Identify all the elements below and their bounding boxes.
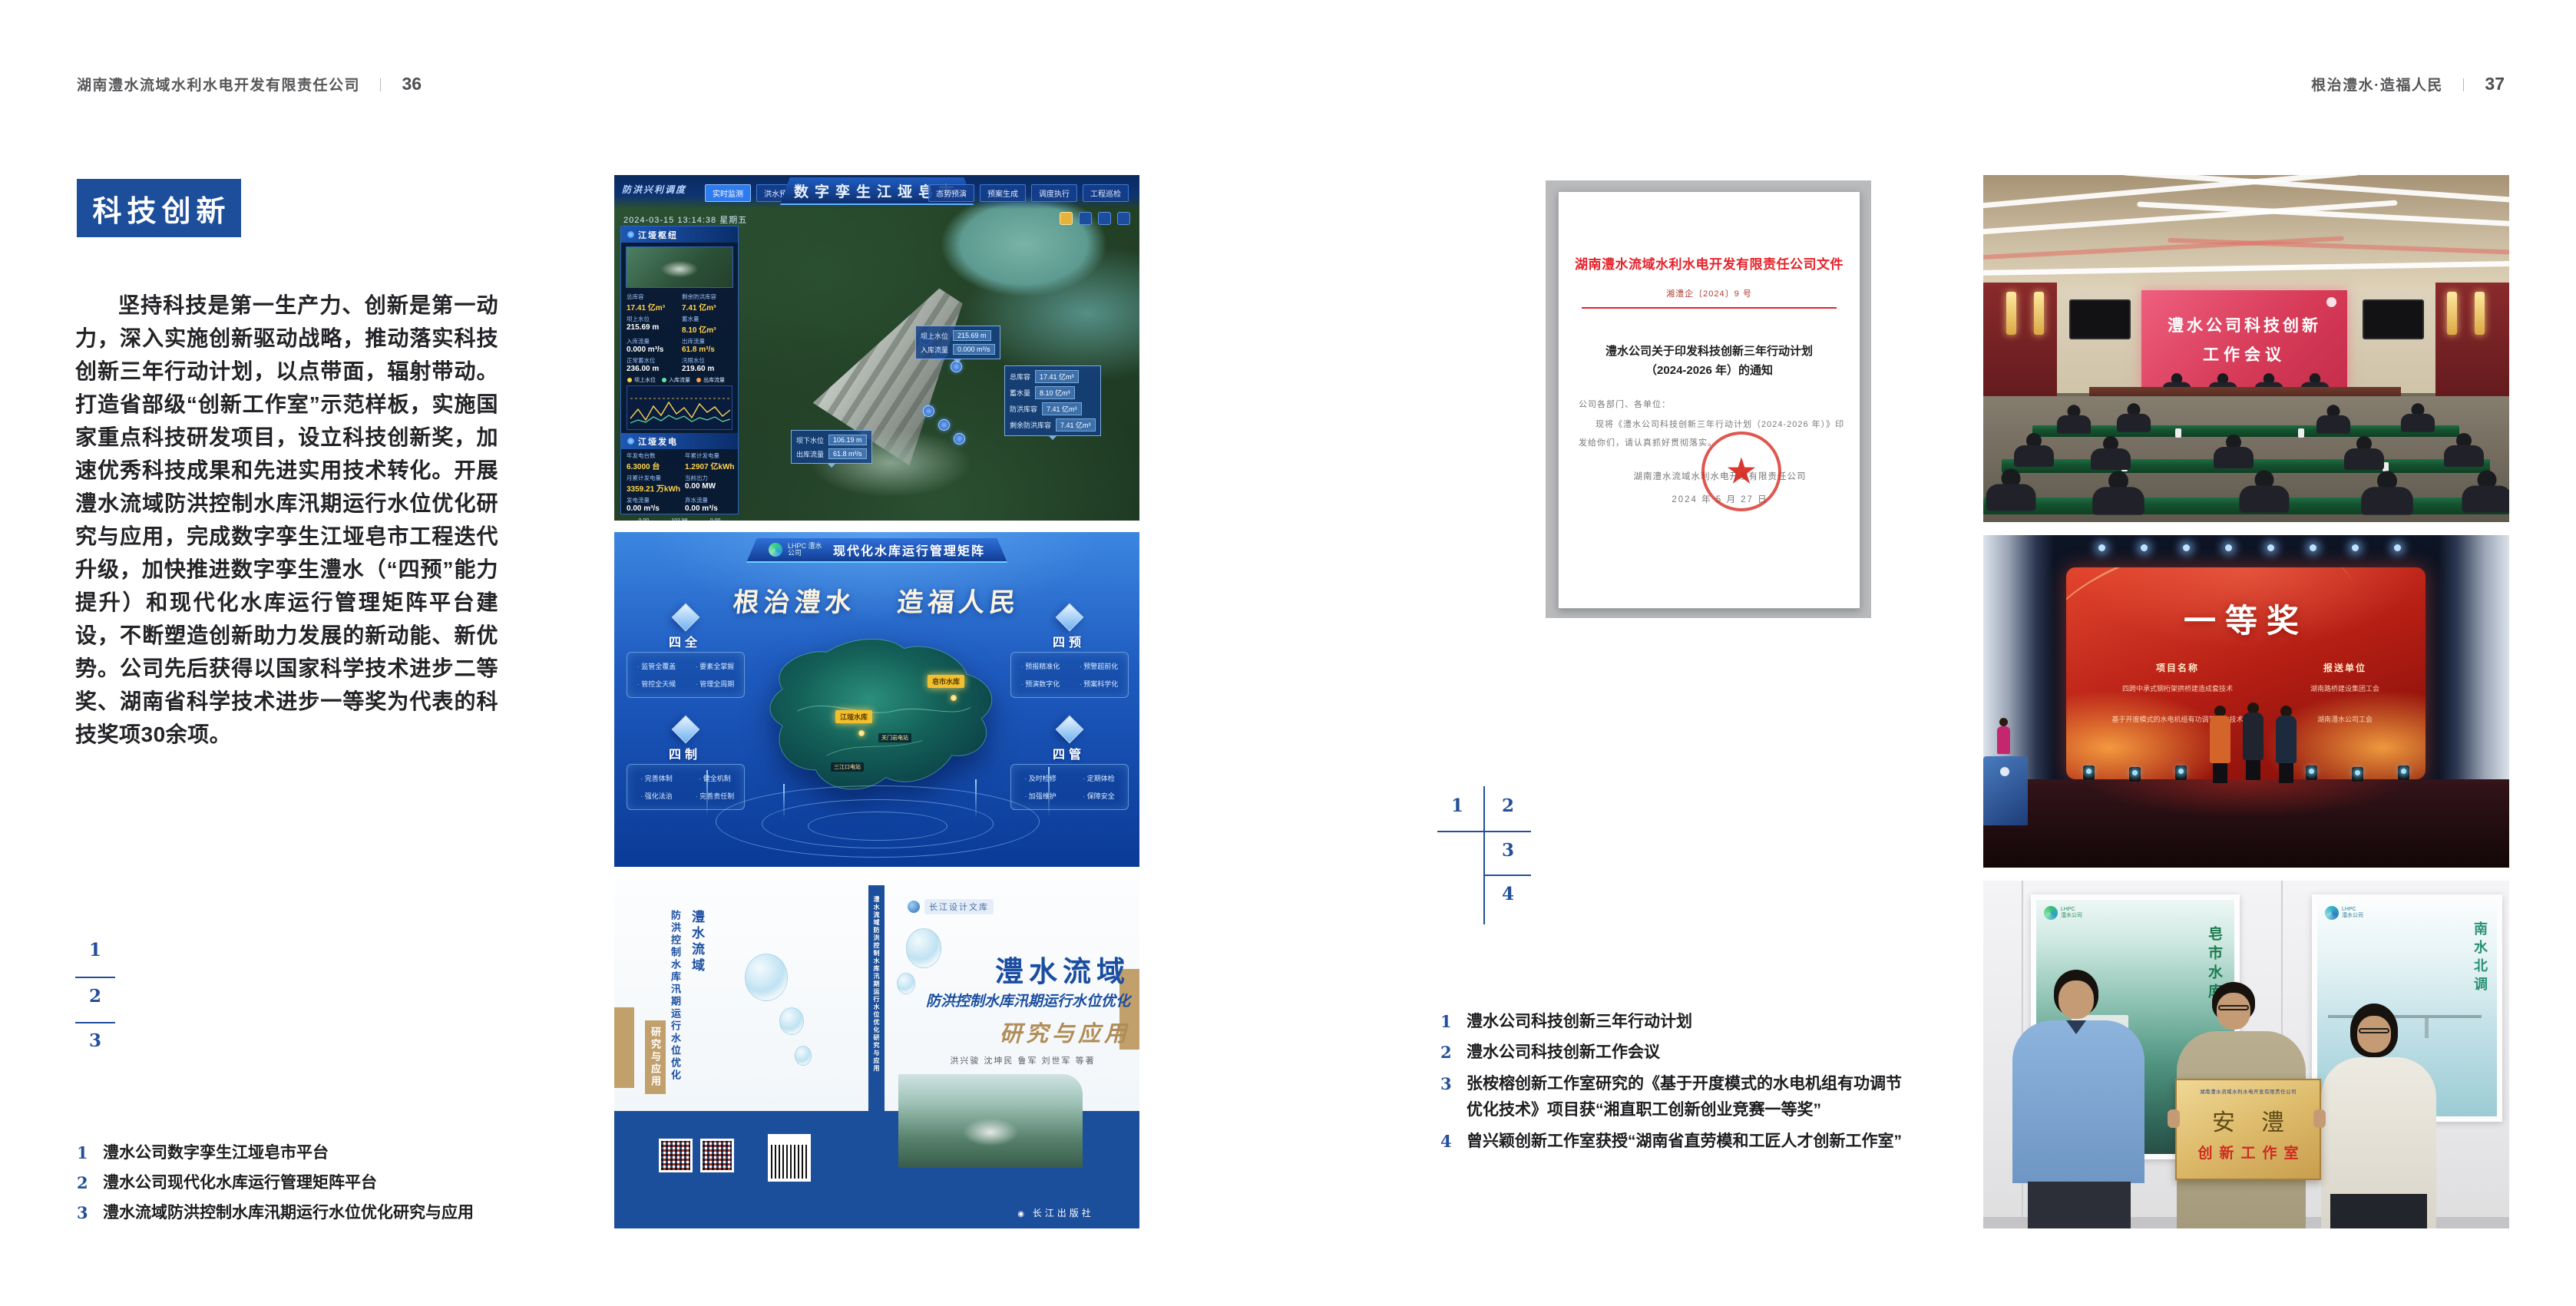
- map-pin-jiangya: 江垭水库: [835, 710, 872, 723]
- face: [2357, 1016, 2391, 1053]
- group-item: 预报精准化: [1021, 661, 1060, 671]
- hydro-plant-photo: [983, 1119, 1133, 1200]
- stat: 剩余防洪库容7.41 亿m³: [682, 293, 732, 312]
- document-paper: 湖南澧水流域水利水电开发有限责任公司文件 湘澧企〔2024〕9 号 澧水公司关于…: [1558, 191, 1860, 609]
- slogan-part: 造福人民: [895, 587, 1021, 618]
- light-pillar: [783, 784, 785, 819]
- figure-digital-twin-dashboard: 防洪兴利调度 实时监测 洪水预报 防洪预警 数字孪生江垭皂市 态势预演 预案生成…: [614, 175, 1139, 521]
- panel-power-title: 江垭发电: [638, 435, 678, 448]
- brand-label: LHPC 澧水公司: [788, 543, 828, 557]
- left-page-header: 湖南澧水流域水利水电开发有限责任公司 ｜ 36: [77, 74, 422, 94]
- tooltip-row: 入库流量0.000 m³/s: [921, 344, 995, 355]
- host-podium: [1983, 756, 2028, 825]
- bridge-in-poster: [2328, 1015, 2482, 1018]
- stat: 出库流量61.8 m³/s: [682, 337, 732, 354]
- group-item: 健全机制: [699, 773, 731, 783]
- light-pillar: [1048, 767, 1050, 818]
- moving-light: [2175, 765, 2187, 780]
- legend-item: 入库流量: [662, 376, 690, 384]
- stat: 发电流量0.00 m³/s: [627, 496, 680, 513]
- lhpc-logo-icon: [2325, 906, 2339, 920]
- barcode-stripes: [771, 1145, 808, 1179]
- chart-legend: 坝上水位 入库流量 出库流量: [621, 375, 738, 384]
- face: [2058, 980, 2094, 1019]
- bridge-pier: [2425, 1018, 2429, 1038]
- group-item: 监管全覆盖: [637, 661, 676, 671]
- index-grid-vline: [1483, 786, 1485, 924]
- group-item: 加强维护: [1024, 791, 1057, 801]
- tab-project-inspect: 工程巡检: [1083, 184, 1129, 202]
- stage-light: [2267, 544, 2274, 551]
- stat: 年发电台数6.3000 台: [627, 451, 680, 471]
- company-name: 湖南澧水流域水利水电开发有限责任公司: [77, 74, 360, 94]
- settings-icon: [1117, 212, 1130, 225]
- library-logo-row: 长江设计文库: [908, 899, 994, 914]
- figure-index-4: 4: [1491, 884, 1525, 904]
- tooltip-upstream: 坝上水位215.69 m 入库流量0.000 m³/s: [915, 326, 1000, 359]
- photo-award-ceremony: 一等奖 项目名称 报送单位 四跨中承式钢桁架拱桥建造成套技术 湖南路桥建设集团工…: [1983, 535, 2509, 868]
- ripple-ellipse: [808, 812, 947, 841]
- back-title-tail: 研究与应用: [645, 1020, 666, 1094]
- award-unit-2: 湖南澧水公司工会: [2287, 715, 2402, 725]
- back-title-sub: 防洪控制水库汛期运行水位优化: [668, 910, 683, 1094]
- ceiling-red-strip: [1983, 236, 2344, 260]
- header-divider: ｜: [2457, 74, 2472, 94]
- group-item: 管理全周期: [696, 679, 735, 689]
- panel-logo-icon: [627, 438, 634, 445]
- front-title-tail: 研究与应用: [961, 1016, 1130, 1048]
- gate-marker: [954, 433, 965, 445]
- figure-index-1: 1: [75, 940, 115, 960]
- caption-number: 4: [1440, 1129, 1456, 1155]
- panel-logo-icon: [627, 231, 634, 238]
- group-panel-siyu: 预报精准化 预警超前化 预演数字化 预案科学化: [1010, 652, 1129, 698]
- lhpc-logo-icon: [769, 543, 782, 557]
- photo-official-document: 湖南澧水流域水利水电开发有限责任公司文件 湘澧企〔2024〕9 号 澧水公司关于…: [1546, 180, 1871, 618]
- screen-title-line1: 澧水公司科技创新: [2141, 313, 2347, 336]
- group-panel-siguan: 及时检修 定期体检 加强维护 保障安全: [1010, 764, 1129, 810]
- pin-dot: [858, 730, 865, 736]
- stage-light: [2183, 544, 2190, 551]
- wall-lamp: [2447, 292, 2457, 335]
- hub-stats-grid: 总库容17.41 亿m³ 剩余防洪库容7.41 亿m³ 坝上水位215.69 m…: [621, 290, 738, 375]
- gauge: 102.98: [670, 518, 689, 521]
- light-pillar: [975, 779, 977, 819]
- presenter-suit: [2243, 703, 2264, 780]
- page-number-right: 37: [2485, 74, 2505, 94]
- matrix-title: 现代化水库运行管理矩阵: [833, 541, 985, 559]
- document-title-line1: 澧水公司关于印发科技创新三年行动计划: [1559, 342, 1860, 359]
- group-name: 四制: [627, 744, 742, 762]
- caption-number: 1: [77, 1140, 92, 1166]
- caption-number: 2: [1440, 1040, 1456, 1066]
- header-divider: ｜: [374, 74, 389, 94]
- moving-light: [2129, 767, 2141, 782]
- moving-light: [2352, 767, 2363, 782]
- water-droplet: [795, 1046, 812, 1066]
- caption-row: 4 曾兴颖创新工作室获授“湖南省直劳模和工匠人才创新工作室”: [1440, 1129, 1902, 1155]
- qr-code: [700, 1139, 734, 1172]
- group-item: 完善责任制: [696, 791, 735, 801]
- user-icon: [1060, 212, 1073, 225]
- water-droplet: [779, 1007, 804, 1035]
- panel-header-hub: 江垭枢纽: [621, 226, 738, 243]
- caption-row: 3 张桉榕创新工作室研究的《基于开度模式的水电机组有功调节优化技术》项目获“湘直…: [1440, 1071, 1913, 1123]
- figure-index-2: 2: [1491, 795, 1525, 816]
- document-red-header: 湖南澧水流域水利水电开发有限责任公司文件: [1559, 253, 1860, 273]
- spine-title: 澧水流域防洪控制水库汛期运行水位优化研究与应用: [872, 896, 881, 1073]
- caption-text: 张桉榕创新工作室研究的《基于开度模式的水电机组有功调节优化技术》项目获“湘直职工…: [1467, 1071, 1913, 1123]
- stat: 正常蓄水位236.00 m: [627, 356, 677, 373]
- caption-text: 曾兴颖创新工作室获授“湖南省直劳模和工匠人才创新工作室”: [1467, 1129, 1902, 1155]
- column-header-unit: 报送单位: [2287, 661, 2402, 674]
- lhpc-logo: LHPC澧水公司: [2044, 906, 2082, 920]
- award-project-1: 四跨中承式钢桁架拱桥建造成套技术: [2082, 684, 2273, 694]
- screen-logo-icon: [2326, 297, 2336, 307]
- wall-lamp: [2006, 292, 2016, 335]
- document-title-line2: （2024-2026 年）的通知: [1559, 362, 1860, 378]
- figure-reservoir-matrix: LHPC 澧水公司 现代化水库运行管理矩阵 根治澧水 造福人民 皂市水库 江垭水…: [614, 532, 1139, 867]
- audience-member: [2444, 433, 2484, 467]
- group-item: 强化法治: [640, 791, 673, 801]
- caption-text: 澧水流域防洪控制水库汛期运行水位优化研究与应用: [103, 1200, 474, 1226]
- group-item: 及时检修: [1024, 773, 1057, 783]
- caption-row: 2 澧水公司科技创新工作会议: [1440, 1040, 1660, 1066]
- index-divider: [75, 977, 115, 978]
- lhpc-logo: LHPC澧水公司: [2325, 906, 2363, 920]
- lhpc-logo-icon: [2044, 906, 2058, 920]
- audience-member: [2091, 436, 2131, 470]
- group-item: 管控全天候: [637, 679, 676, 689]
- tooltip-capacity: 总库容17.41 亿m³ 蓄水量8.10 亿m³ 防洪库容7.41 亿m³ 剩余…: [1004, 365, 1101, 436]
- seal-star-icon: ★: [1727, 455, 1756, 488]
- award-title: 一等奖: [2066, 595, 2426, 642]
- lhpc-logo-text: LHPC澧水公司: [2061, 907, 2082, 918]
- water-droplet: [906, 928, 941, 968]
- watershed-map: [737, 623, 1020, 807]
- caption-text: 澧水公司科技创新工作会议: [1467, 1040, 1660, 1066]
- panel-hub-title: 江垭枢纽: [638, 229, 678, 241]
- tooltip-row: 坝上水位215.69 m: [921, 330, 995, 341]
- stat: 坝上水位215.69 m: [627, 315, 677, 335]
- pin-dot: [951, 695, 957, 701]
- moving-light: [2083, 765, 2095, 780]
- water-droplet: [745, 954, 788, 1001]
- matrix-title-banner: LHPC 澧水公司 现代化水库运行管理矩阵: [746, 538, 1007, 563]
- poster-calligraphy: 南水北调: [2469, 921, 2489, 995]
- book-spine: 澧水流域防洪控制水库汛期运行水位优化研究与应用: [868, 885, 885, 1224]
- group-item: 完善体制: [640, 773, 673, 783]
- stage-light: [2352, 544, 2359, 551]
- lhpc-logo-text: LHPC澧水公司: [2342, 907, 2363, 918]
- wall-lamp: [2034, 292, 2044, 335]
- panel-header-power: 江垭发电: [621, 433, 738, 449]
- authors-line: 洪兴骏 沈坤民 鲁军 刘世军 等著: [915, 1054, 1130, 1066]
- stage-light: [2394, 544, 2401, 551]
- caption-row: 1 澧水公司科技创新三年行动计划: [1440, 1009, 1692, 1035]
- map-pin-sanjiangkou: 三江口电站: [831, 762, 864, 772]
- dashboard-left-panel: 江垭枢纽 总库容17.41 亿m³ 剩余防洪库容7.41 亿m³ 坝上水位215…: [620, 226, 739, 514]
- group-panel-siquan: 监管全覆盖 要素全掌握 管控全天候 管理全周期: [627, 652, 745, 698]
- group-item: 要素全掌握: [696, 661, 735, 671]
- innovation-studio-plaque: 湖南澧水流域水利水电开发有限责任公司 安澧 创新工作室: [2175, 1079, 2321, 1180]
- screen-title-line2: 工作会议: [2141, 342, 2347, 365]
- group-icon-sizhi: [672, 716, 700, 744]
- legend-item: 出库流量: [696, 376, 725, 384]
- glasses-icon: [2218, 1005, 2249, 1010]
- locate-icon: [1098, 212, 1111, 225]
- back-title-region: 澧水流域: [687, 910, 706, 1094]
- caption-text: 澧水公司数字孪生江垭皂市平台: [103, 1140, 329, 1166]
- section-title-badge: 科技创新: [77, 179, 241, 237]
- audience-member: [1986, 469, 2036, 511]
- awardee-navy: [2276, 706, 2297, 783]
- wall-tv: [2069, 299, 2131, 339]
- group-name: 四预: [1011, 632, 1126, 650]
- hand: [2313, 1109, 2326, 1128]
- group-item: 保障安全: [1083, 791, 1115, 801]
- water-level-chart: [627, 385, 732, 430]
- document-body-line2: 发给你们，请认真抓好贯彻落实。: [1579, 436, 1717, 448]
- index-divider: [75, 1022, 115, 1023]
- tooltip-row: 出库流量61.8 m³/s: [796, 448, 867, 459]
- figure-index-1: 1: [1440, 795, 1474, 816]
- caption-row: 2 澧水公司现代化水库运行管理矩阵平台: [77, 1170, 377, 1196]
- front-title-region: 澧水流域: [940, 948, 1130, 990]
- plaque-subtitle: 创新工作室: [2177, 1142, 2320, 1162]
- figure-index-2: 2: [75, 986, 115, 1007]
- caption-text: 澧水公司现代化水库运行管理矩阵平台: [103, 1170, 377, 1196]
- caption-number: 2: [77, 1170, 92, 1196]
- dashboard-right-tabs: 态势预演 预案生成 调度执行 工程巡检: [928, 184, 1129, 202]
- tan-accent-block: [614, 1007, 634, 1088]
- audience-member: [2014, 433, 2054, 467]
- face: [2217, 993, 2250, 1030]
- plaque-company-line: 湖南澧水流域水利水电开发有限责任公司: [2177, 1087, 2320, 1095]
- stage-light: [2310, 544, 2316, 551]
- caption-number: 3: [1440, 1071, 1456, 1097]
- tab-plan-generate: 预案生成: [980, 184, 1026, 202]
- page-number-left: 36: [402, 74, 422, 94]
- moving-light: [2398, 765, 2409, 780]
- audience-member: [2401, 403, 2435, 431]
- document-red-rule: [1582, 307, 1837, 309]
- slogan-part: 根治澧水: [732, 587, 858, 618]
- tab-situation-preview: 态势预演: [928, 184, 974, 202]
- group-item: 预警超前化: [1080, 661, 1119, 671]
- figure-book-cover: 澧水流域 防洪控制水库汛期运行水位优化 研究与应用 澧水流域防洪控制水库汛期运行…: [614, 881, 1139, 1228]
- column-header-project: 项目名称: [2105, 661, 2250, 674]
- tooltip-row: 剩余防洪库容7.41 亿m³: [1010, 418, 1096, 431]
- skirt: [2330, 1194, 2427, 1228]
- body-paragraph: 坚持科技是第一生产力、创新是第一动力，深入实施创新驱动战略，推动落实科技创新三年…: [75, 289, 498, 751]
- group-name: 四管: [1011, 744, 1126, 762]
- stage-light: [2098, 544, 2105, 551]
- audience-member: [2057, 405, 2091, 433]
- group-item: 预演数字化: [1021, 679, 1060, 689]
- stat: 入库流量0.000 m³/s: [627, 337, 677, 354]
- host-figure: [1997, 718, 2010, 754]
- light-pillar: [706, 770, 708, 816]
- caption-row: 1 澧水公司数字孪生江垭皂市平台: [77, 1140, 329, 1166]
- plaque-main-title: 安澧: [2177, 1103, 2320, 1137]
- group-item: 预案科学化: [1080, 679, 1119, 689]
- caption-number: 3: [77, 1200, 92, 1226]
- index-grid-hline: [1483, 875, 1531, 876]
- audience-member: [2240, 471, 2290, 513]
- tooltip-row: 蓄水量8.10 亿m³: [1010, 386, 1096, 399]
- caption-text: 澧水公司科技创新三年行动计划: [1467, 1009, 1692, 1035]
- audience-member: [2462, 471, 2510, 513]
- map-pin-zaoshi: 皂市水库: [928, 675, 964, 688]
- caption-row: 3 澧水流域防洪控制水库汛期运行水位优化研究与应用: [77, 1200, 474, 1226]
- hand: [2168, 1109, 2180, 1128]
- stat: 蓄水量8.10 亿m³: [682, 315, 732, 335]
- stat: 汛限水位219.60 m: [682, 356, 732, 373]
- library-label: 长江设计文库: [924, 899, 994, 914]
- hub-photo-thumbnail: [626, 246, 733, 288]
- stage-light: [2225, 544, 2232, 551]
- ceiling-light: [1983, 261, 2509, 276]
- index-grid-hline: [1437, 831, 1531, 832]
- wall-lamp: [2475, 292, 2485, 335]
- generator-gauges: 0.00 102.98 0.00: [621, 515, 738, 521]
- audience-member: [2361, 471, 2413, 514]
- moving-light: [2306, 765, 2317, 780]
- tab-dispatch-execute: 调度执行: [1031, 184, 1077, 202]
- document-salutation: 公司各部门、各单位：: [1579, 398, 1671, 410]
- caption-number: 1: [1440, 1009, 1456, 1035]
- stage-light: [2141, 544, 2148, 551]
- group-icon-siguan: [1056, 716, 1084, 744]
- tooltip-row: 防洪库容7.41 亿m³: [1010, 402, 1096, 415]
- group-panel-sizhi: 完善体制 健全机制 强化法治 完善责任制: [627, 764, 745, 810]
- stat: 总库容17.41 亿m³: [627, 293, 677, 312]
- gate-marker: [923, 405, 934, 417]
- photo-studio-plaque: LHPC澧水公司 皂市水库 LHPC澧水公司 南水北调 湖南澧水流域水利水电开发…: [1983, 881, 2509, 1228]
- changjiang-design-logo-icon: [908, 901, 920, 913]
- qr-code: [659, 1139, 693, 1172]
- audience-member: [2117, 403, 2151, 431]
- dashboard-corner-label: 防洪兴利调度: [622, 183, 686, 196]
- dashboard-datetime: 2024-03-15 13:14:38 星期五: [623, 213, 747, 226]
- group-item: 定期体检: [1083, 773, 1115, 783]
- group-name: 四全: [627, 632, 742, 650]
- right-page-header: 根治澧水·造福人民 ｜ 37: [2311, 74, 2505, 94]
- tooltip-row: 坝下水位106.19 m: [796, 435, 867, 445]
- stat: 月累计发电量3359.21 万kWh: [627, 474, 680, 494]
- publisher-label: 长江出版社: [975, 1206, 1136, 1219]
- document-number: 湘澧企〔2024〕9 号: [1559, 287, 1860, 299]
- stat: 弃水流量0.00 m³/s: [685, 496, 734, 513]
- award-unit-1: 湖南路桥建设集团工会: [2287, 684, 2402, 694]
- audience-member: [2214, 435, 2254, 468]
- gauge: 0.00: [634, 518, 653, 521]
- gate-marker: [938, 419, 950, 431]
- photo-innovation-meeting: 澧水公司科技创新 工作会议: [1983, 175, 2509, 522]
- front-title-sub: 防洪控制水库汛期运行水位优化: [900, 990, 1130, 1010]
- audience-member: [2092, 471, 2144, 514]
- back-cover-title: 澧水流域 防洪控制水库汛期运行水位优化: [668, 910, 706, 1094]
- stat: 年累计发电量1.2907 亿kWh: [685, 451, 734, 471]
- trousers: [2028, 1182, 2131, 1228]
- tooltip-row: 总库容17.41 亿m³: [1010, 370, 1096, 383]
- official-seal: ★: [1701, 431, 1781, 511]
- wall-tv: [2363, 299, 2424, 339]
- map-pin-guanmenyan: 关门岩电站: [878, 733, 911, 742]
- figure-index-3: 3: [1491, 840, 1525, 861]
- dashboard-toolbar-icons: [1060, 212, 1130, 225]
- tooltip-downstream: 坝下水位106.19 m 出库流量61.8 m³/s: [791, 430, 872, 464]
- chart-svg: [627, 386, 733, 428]
- tab-realtime-monitor: 实时监测: [705, 184, 751, 202]
- glasses-icon: [2359, 1028, 2389, 1033]
- awardee-orange: [2210, 706, 2230, 783]
- stat: 当前出力0.00 MW: [685, 474, 734, 494]
- power-stats-grid: 年发电台数6.3000 台 年累计发电量1.2907 亿kWh 月累计发电量33…: [621, 449, 738, 515]
- gauge: 0.00: [706, 518, 725, 521]
- polo-shirt: [2012, 1020, 2144, 1183]
- audience-member: [2316, 405, 2350, 433]
- barcode: [768, 1134, 811, 1182]
- figure-index-3: 3: [75, 1030, 115, 1051]
- paper-cup: [2175, 428, 2181, 438]
- document-body-line1: 现将《澧水公司科技创新三年行动计划（2024-2026 年）》印: [1596, 418, 1844, 430]
- legend-item: 坝上水位: [627, 376, 656, 384]
- stage-floor: [1983, 779, 2509, 868]
- paper-cup: [2298, 428, 2304, 438]
- ceiling: [1983, 175, 2509, 290]
- motto: 根治澧水·造福人民: [2311, 74, 2443, 94]
- audience-member: [2344, 436, 2384, 470]
- layers-icon: [1079, 212, 1092, 225]
